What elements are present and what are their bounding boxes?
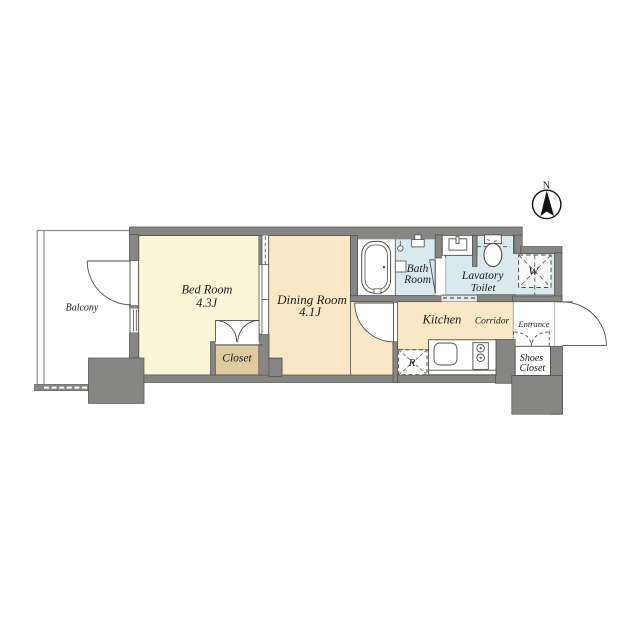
svg-text:Bed Room: Bed Room bbox=[182, 283, 233, 297]
svg-text:Corridor: Corridor bbox=[475, 316, 510, 326]
svg-text:Entrance: Entrance bbox=[517, 319, 549, 329]
svg-text:Toilet: Toilet bbox=[471, 282, 497, 294]
svg-text:4.1J: 4.1J bbox=[299, 304, 322, 319]
svg-text:Room: Room bbox=[403, 274, 431, 286]
svg-text:R: R bbox=[408, 357, 416, 369]
svg-text:Balcony: Balcony bbox=[66, 303, 99, 314]
svg-text:W: W bbox=[528, 264, 539, 278]
svg-text:4.3J: 4.3J bbox=[196, 296, 217, 310]
svg-text:Closet: Closet bbox=[520, 363, 546, 374]
svg-text:Lavatory: Lavatory bbox=[461, 270, 504, 282]
svg-text:Closet: Closet bbox=[222, 353, 252, 365]
svg-text:Kitchen: Kitchen bbox=[422, 312, 462, 326]
